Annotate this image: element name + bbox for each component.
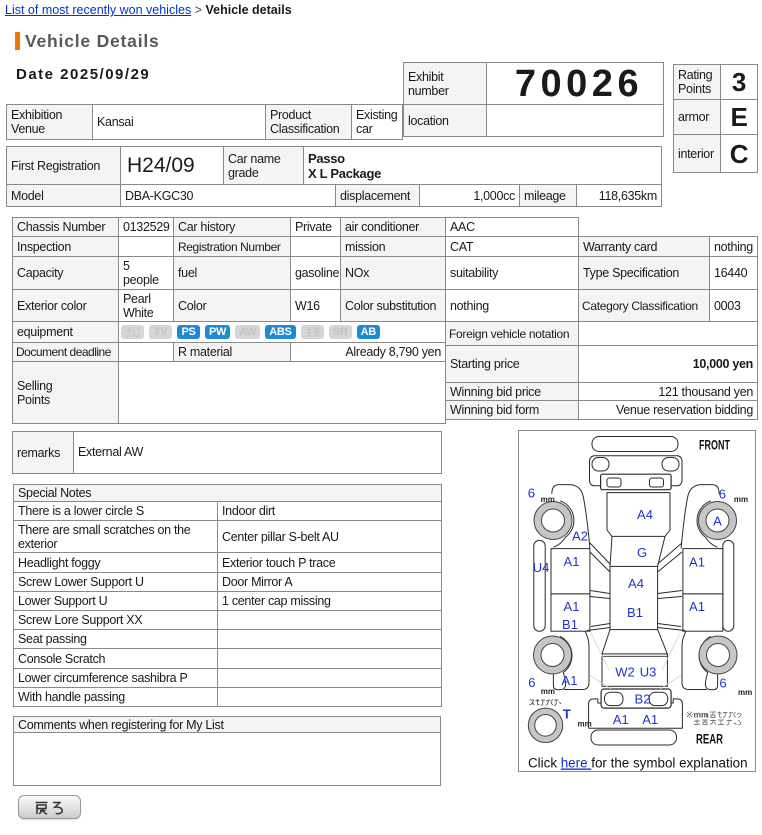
- svg-text:mm: mm: [734, 495, 748, 504]
- svg-text:U3: U3: [640, 665, 657, 680]
- svg-text:A1: A1: [689, 555, 705, 570]
- svg-text:W2: W2: [615, 665, 635, 680]
- svg-text:mm: mm: [541, 687, 555, 696]
- svg-text:A1: A1: [642, 712, 658, 727]
- svg-text:B1: B1: [627, 605, 643, 620]
- svg-text:U4: U4: [533, 560, 550, 575]
- svg-text:A1: A1: [689, 599, 705, 614]
- svg-text:6: 6: [528, 486, 535, 501]
- svg-text:FRONT: FRONT: [699, 438, 730, 453]
- svg-text:A: A: [713, 514, 722, 529]
- svg-text:A1: A1: [564, 554, 580, 569]
- svg-text:B2: B2: [635, 692, 651, 707]
- svg-text:REAR: REAR: [696, 732, 723, 747]
- svg-text:B1: B1: [562, 617, 578, 632]
- svg-text:mm: mm: [738, 688, 752, 697]
- svg-text:A1: A1: [562, 673, 578, 688]
- svg-text:A1: A1: [613, 712, 629, 727]
- svg-text:6: 6: [719, 675, 726, 690]
- svg-text:mm: mm: [578, 720, 592, 729]
- svg-text:T: T: [563, 707, 571, 722]
- svg-text:mm: mm: [541, 495, 555, 504]
- svg-text:G: G: [637, 545, 647, 560]
- svg-text:A2: A2: [572, 529, 588, 544]
- svg-text:6: 6: [528, 675, 535, 690]
- svg-text:A4: A4: [628, 576, 644, 591]
- svg-text:6: 6: [719, 486, 726, 501]
- svg-text:A1: A1: [564, 599, 580, 614]
- svg-text:Click here for the symbol expl: Click here for the symbol explanation: [528, 756, 748, 771]
- svg-text:A4: A4: [637, 507, 653, 522]
